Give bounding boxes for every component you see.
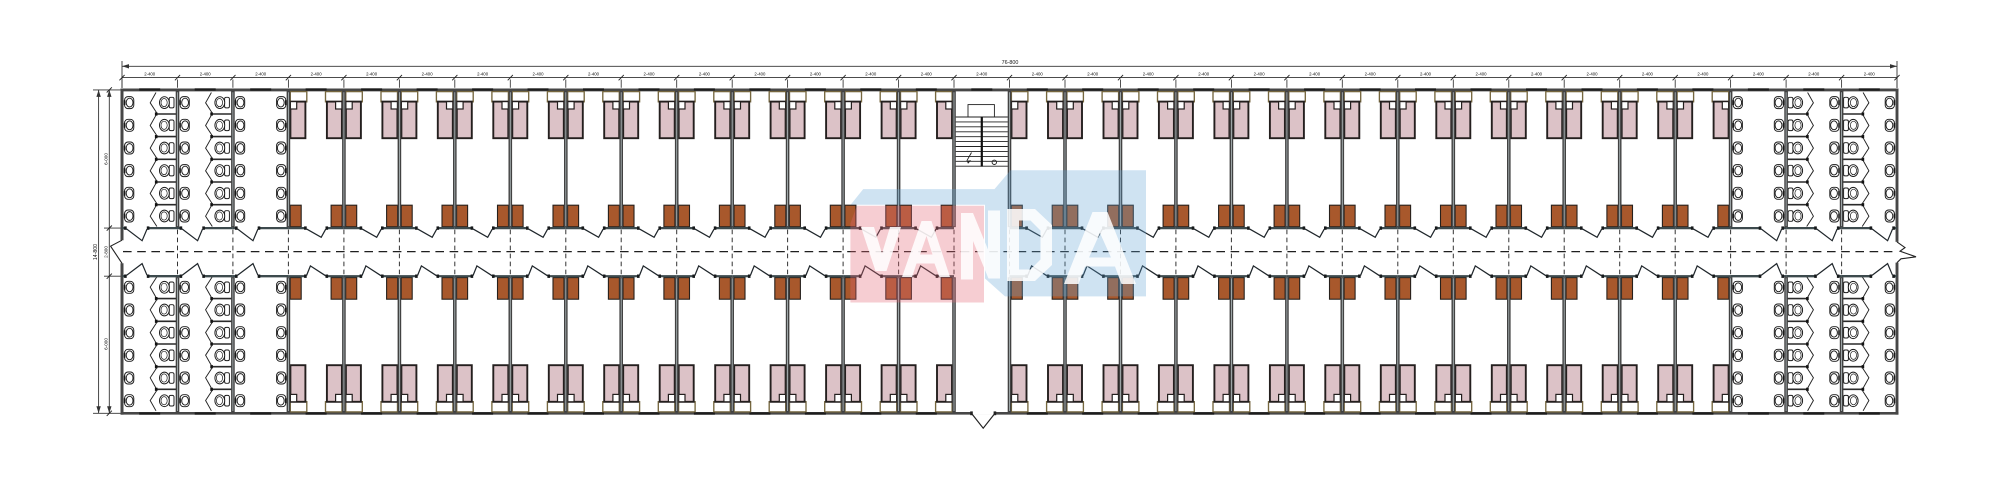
svg-text:2-400: 2-400 [1642, 72, 1654, 77]
svg-text:6-000: 6-000 [104, 153, 109, 165]
svg-text:2-400: 2-400 [366, 72, 378, 77]
svg-text:2-400: 2-400 [1753, 72, 1765, 77]
svg-text:2-400: 2-400 [533, 72, 545, 77]
svg-text:2-400: 2-400 [1143, 72, 1155, 77]
svg-text:2-400: 2-400 [200, 72, 212, 77]
svg-text:2-400: 2-400 [1808, 72, 1820, 77]
svg-text:2-400: 2-400 [1476, 72, 1488, 77]
svg-text:14-800: 14-800 [93, 244, 99, 260]
svg-text:2-400: 2-400 [1864, 72, 1876, 77]
svg-text:2-400: 2-400 [422, 72, 434, 77]
svg-text:2-400: 2-400 [1365, 72, 1377, 77]
svg-text:2-400: 2-400 [1309, 72, 1321, 77]
svg-text:2-400: 2-400 [1254, 72, 1266, 77]
svg-text:2-400: 2-400 [588, 72, 600, 77]
svg-text:6-000: 6-000 [104, 338, 109, 350]
svg-text:2-400: 2-400 [1198, 72, 1210, 77]
svg-text:2-400: 2-400 [1420, 72, 1432, 77]
svg-text:2-400: 2-400 [311, 72, 323, 77]
svg-text:2-400: 2-400 [1087, 72, 1099, 77]
svg-text:2-400: 2-400 [1587, 72, 1599, 77]
svg-text:2-400: 2-400 [810, 72, 822, 77]
svg-text:2-400: 2-400 [255, 72, 267, 77]
svg-text:76-800: 76-800 [1002, 60, 1019, 66]
svg-text:2-400: 2-400 [144, 72, 156, 77]
svg-text:2-400: 2-400 [1697, 72, 1709, 77]
svg-text:2-400: 2-400 [699, 72, 711, 77]
svg-text:2-400: 2-400 [644, 72, 656, 77]
svg-text:2-400: 2-400 [921, 72, 933, 77]
svg-text:2-400: 2-400 [1032, 72, 1044, 77]
svg-text:2-400: 2-400 [1531, 72, 1543, 77]
svg-text:2-400: 2-400 [477, 72, 489, 77]
svg-text:2-400: 2-400 [754, 72, 766, 77]
svg-text:2-400: 2-400 [976, 72, 988, 77]
svg-text:2-800: 2-800 [104, 246, 109, 258]
svg-text:2-400: 2-400 [865, 72, 877, 77]
